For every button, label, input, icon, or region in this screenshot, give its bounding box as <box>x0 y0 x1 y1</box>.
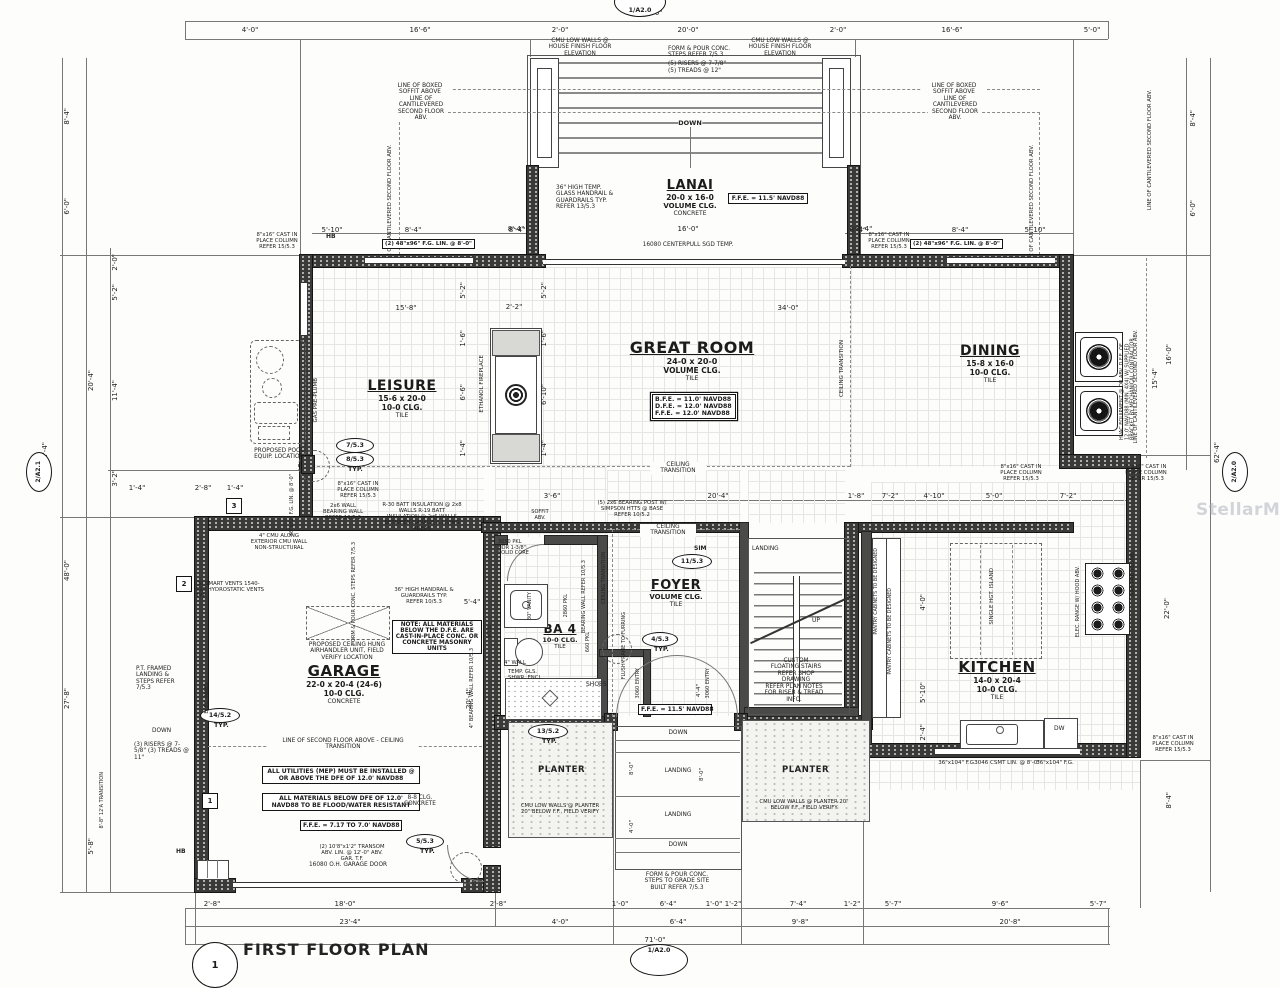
dim: 5'-0" <box>986 492 1003 500</box>
callout-5-5-3: 5/5.3 <box>406 834 444 849</box>
ceiling-transition-line <box>850 266 851 467</box>
dim: 6'-4" <box>670 918 687 926</box>
dim: 1'-8" <box>848 492 865 500</box>
step-line <box>615 752 740 753</box>
wall-type-marker-1: 1 <box>202 793 218 809</box>
dim: 22'-0" <box>1164 598 1171 619</box>
great-room-elev-box: B.F.E. = 11.0' NAVD88 D.F.E. = 12.0' NAV… <box>652 394 736 419</box>
room-size: 24-0 x 20-0 <box>630 357 754 366</box>
note-clg88: 8-8 CLG. CONCRETE <box>398 795 442 808</box>
dim: 1'-0" <box>612 900 629 908</box>
dim-line <box>1186 58 1187 470</box>
note-risers3: (3) RISERS @ 7-5/8" (3) TREADS @ 11" <box>134 742 192 761</box>
dim: 8'-4" <box>1190 110 1197 127</box>
garage-door <box>233 882 463 888</box>
stairs-landing-label: LANDING <box>752 546 779 553</box>
garage-utilities-box: ALL UTILITIES (MEP) MUST BE INSTALLED @ … <box>262 766 420 784</box>
note-transom: (2) 10'8"x1'2" TRANSOM ABV. LIN. @ 12'-0… <box>314 845 390 863</box>
faucet <box>996 726 1004 734</box>
wall-interior <box>740 523 748 716</box>
room-clg: 10-0 CLG. <box>542 636 577 644</box>
dim-line <box>62 58 63 892</box>
dim-line <box>86 58 87 892</box>
room-label-great-room: GREAT ROOM 24-0 x 20-0 VOLUME CLG. TILE <box>630 338 754 382</box>
dim-line <box>185 21 1108 22</box>
note-smart-vents: (5) SMART VENTS 1540-510 HYDROSTATIC VEN… <box>196 582 268 600</box>
dim: 8'-4" <box>509 226 526 234</box>
note-pool-equip: PROPOSED POOL EQUIP. LOCATION <box>252 448 306 461</box>
room-clg: VOLUME CLG. <box>649 593 702 601</box>
note-2860: 2860 PKL <box>564 594 569 617</box>
dim: 1'-6" <box>541 330 548 347</box>
dim-line <box>110 248 111 892</box>
dim: 11'-4" <box>112 380 119 401</box>
dim: 1'-2" <box>725 900 742 908</box>
ext-line <box>60 255 300 256</box>
section-bubble-right-label: 2/A2.0 <box>1232 461 1238 483</box>
wall <box>484 866 500 892</box>
note-handrail36: 36" HIGH HANDRAIL & GUARDRAILS TYP. REFE… <box>394 588 454 606</box>
note-bearing-post: (5) 2x6 BEARING POST W/ SIMPSON HTT5 @ B… <box>592 501 672 519</box>
ext-line <box>108 470 312 471</box>
room-label-garage: GARAGE 22-0 x 20-4 (24-6) 10-0 CLG. CONC… <box>306 662 382 705</box>
section-bubble-left-label: 2/A2.1 <box>36 461 42 483</box>
dim: 1'-4" <box>541 440 548 457</box>
note-fg48-box: (2) 48"x96" F.G. LIN. @ 8'-0" <box>382 239 475 249</box>
note-soffit: SOFFIT ABV. <box>528 510 552 521</box>
callout-circle <box>602 634 632 664</box>
wall <box>1060 255 1073 468</box>
wall-type-marker-2: 2 <box>176 576 192 592</box>
dishwasher-label: DW <box>1054 726 1065 733</box>
step-landing-label: LANDING <box>665 768 692 775</box>
dim: 5'-7" <box>885 900 902 908</box>
dim: 2'-8" <box>195 484 212 492</box>
note-ceiling-transition: CEILING TRANSITION <box>640 524 696 537</box>
ext-line <box>1073 255 1210 256</box>
lanai-column-inner <box>537 68 552 158</box>
air-handler-dashed <box>306 606 390 640</box>
room-clg: VOLUME CLG. <box>663 202 716 210</box>
callout-typ: TYP. <box>420 848 435 855</box>
note-ahu: PROPOSED CEILING HUNG AIRHANDLER UNIT, F… <box>304 642 390 661</box>
note-column: 8"x16" CAST IN PLACE COLUMN REFER 15/5.3 <box>330 482 386 500</box>
island-line <box>980 545 981 655</box>
room-size: 14-0 x 20-4 <box>958 676 1035 685</box>
dim: 34'-0" <box>777 304 798 312</box>
dim: 16'-0" <box>677 225 698 233</box>
note-ceiling-transition-v: CEILING TRANSITION <box>840 340 846 397</box>
dim: 1'-6" <box>460 330 467 347</box>
note-bearing-wall: BEARING WALL REFER 10/5.3 <box>582 560 587 633</box>
step-down-label: DOWN <box>668 730 687 737</box>
dim: 20'-0" <box>677 26 698 34</box>
planter-label: PLANTER <box>538 766 585 776</box>
electric-range <box>1085 563 1130 635</box>
window-fg48 <box>947 257 1055 264</box>
room-name: KITCHEN <box>958 658 1035 676</box>
dim: 2'-0" <box>830 26 847 34</box>
room-name: GREAT ROOM <box>630 338 754 357</box>
note-vanity: 30" VANITY <box>528 592 533 620</box>
note-pantry: PANTRY CABINETS TO BE DESIGNED <box>874 548 879 635</box>
note-column: 8"x16" CAST IN PLACE COLUMN REFER 15/5.3 <box>1144 736 1202 754</box>
exterior-steps <box>197 860 229 880</box>
window <box>301 282 307 336</box>
lanai-low-wall <box>848 166 859 257</box>
dim-line <box>1108 908 1109 944</box>
pool-equipment <box>262 378 282 398</box>
room-name: LEISURE <box>368 378 437 394</box>
dim: 5'-10" <box>1024 226 1045 234</box>
hvac-fan <box>1086 398 1112 424</box>
note-form-pour-v: FORM & POUR CONC. STEPS REFER 7/5.3 <box>352 542 357 645</box>
note-second-floor-line: LINE OF SECOND FLOOR ABOVE - CEILING TRA… <box>268 738 418 751</box>
dim: 8'-0" <box>700 768 706 781</box>
section-bubble-left: 2/A2.1 <box>26 452 52 492</box>
dim: 20'-4" <box>707 492 728 500</box>
dim: 7'-4" <box>790 900 807 908</box>
note-entry-door: 3060 ENTRY <box>706 668 711 698</box>
note-cmu-planter: CMU LOW WALLS @ PLANTER 20" BELOW F.F., … <box>752 800 856 812</box>
note-garage-door: 16080 O.H. GARAGE DOOR <box>309 862 387 868</box>
bfe: B.F.E. = 11.0' NAVD88 <box>655 396 733 403</box>
note-cmu-planter: CMU LOW WALLS @ PLANTER 20" BELOW F.F., … <box>518 804 602 816</box>
ext-line <box>1073 39 1074 255</box>
room-label-lanai: LANAI 20-0 x 16-0 VOLUME CLG. CONCRETE <box>663 178 716 217</box>
pool-equipment <box>254 402 298 424</box>
note-cantilever: LINE OF CANTILEVERED SECOND FLOOR ABV. <box>928 96 982 122</box>
fireplace-cabinet <box>492 434 540 462</box>
wall <box>195 879 235 892</box>
note-csmt: 3046 CSMT LIN. @ 8'-0" <box>974 760 1040 766</box>
dim: 4'-0" <box>552 918 569 926</box>
dim: 23'-4" <box>339 918 360 926</box>
dim: 7'-2" <box>1060 492 1077 500</box>
planter-left <box>508 722 613 838</box>
note-window-fg: 36"x72" F.G. LIN. @ 8'-0" <box>290 474 295 536</box>
note-ceiling-transition-v: CEILING TRANSITION <box>602 552 607 604</box>
note-window-fg: 36"x104" F.G. <box>938 760 976 766</box>
dim: 1'-4" <box>460 440 467 457</box>
note-elec-panel: ELEC. PANEL <box>205 682 210 714</box>
note-sgd: 16080 CENTERPULL SGD TEMP. <box>643 242 734 248</box>
dim: 4'-0" <box>630 820 636 833</box>
callout-8-5-3: 8/5.3 <box>336 452 374 467</box>
dim: 5'-2" <box>541 282 548 299</box>
dim: 1'-4" <box>129 484 146 492</box>
dim: 18'-0" <box>334 900 355 908</box>
hose-bib: HB <box>326 234 336 241</box>
sheet-title: FIRST FLOOR PLAN <box>243 941 430 959</box>
note-3050-door: 3050 PKL HDR 1-3/8" SOLID CORE <box>498 540 534 557</box>
note-risers: (5) RISERS @ 7-7/8" <box>668 61 736 67</box>
note-2x6-wall: 2x6 WALL BEARING WALL REFER 10/5.3 <box>322 504 364 522</box>
ffe: F.F.E. = 12.0' NAVD88 <box>655 410 733 417</box>
dim: 1'-2" <box>844 900 861 908</box>
step-line <box>615 838 740 839</box>
dim: 16'-6" <box>409 26 430 34</box>
dim: 4'-0" <box>920 594 927 611</box>
step-down-label: DOWN <box>668 842 687 849</box>
note-soffit-line: LINE OF BOXED SOFFIT ABOVE <box>922 83 986 96</box>
ext-line <box>495 892 496 926</box>
room-name: DINING <box>960 343 1020 359</box>
note-4in-wall: 4" WALL <box>504 660 526 666</box>
dim: 9'-8" <box>792 918 809 926</box>
room-name: FOYER <box>649 578 702 593</box>
hvac-unit <box>1075 332 1123 382</box>
room-clg: 10-0 CLG. <box>306 689 382 698</box>
note-steps-form: FORM & POUR CONC. STEPS REFER 7/5.3 <box>668 46 736 59</box>
dim: 1'-4" <box>227 484 244 492</box>
dishwasher <box>1044 718 1078 749</box>
cantilever-dashed-line <box>1146 258 1147 458</box>
dim: 5'-4" <box>464 598 481 606</box>
note-vto: V.T.O. <box>488 624 493 638</box>
note-pt-landing: P.T. FRAMED LANDING & STEPS REFER 7/5.3 <box>136 666 188 692</box>
note-riser-tread: REFER PLAN NOTES FOR RISER & TREAD INFO. <box>764 684 824 703</box>
note-column: 8"x16" CAST IN PLACE COLUMN REFER 15/5.3 <box>1120 465 1172 483</box>
dim: 2'-8" <box>204 900 221 908</box>
step-line <box>207 860 208 878</box>
note-window-fg: 36"x104" F.G. <box>1036 760 1074 766</box>
garage-flood-box: ALL MATERIALS BELOW DFE OF 12.0' NAVD88 … <box>262 793 420 811</box>
cantilever-dashed-line <box>399 112 400 255</box>
callout-typ: TYP. <box>348 466 363 473</box>
label-shoes: SHOES <box>586 682 607 689</box>
room-clg: 10-0 CLG. <box>368 403 437 412</box>
planter-label: PLANTER <box>782 766 829 776</box>
garage-ffe-box: F.F.E. = 7.17 TO 7.0' NAVD88 <box>300 820 402 831</box>
wall-type-marker-3: 3 <box>226 498 242 514</box>
callout-11-5-3: 11/5.3 <box>672 554 712 569</box>
dim: 27'-8" <box>64 688 71 709</box>
note-range: ELEC. RANGE W/ HOOD ABV. <box>1076 566 1081 637</box>
step-line <box>217 860 218 878</box>
dim: 20'-4" <box>466 688 473 709</box>
floor-plan-sheet: { "watermark": "StellarMLS", "sheet": {"… <box>0 0 1280 960</box>
room-floor: CONCRETE <box>663 210 716 217</box>
note-cantilever-v: LINE OF CANTILEVERED SECOND FLOOR ABV. <box>1030 145 1036 265</box>
room-floor: CONCRETE <box>306 698 382 705</box>
fireplace-cabinet <box>492 330 540 356</box>
note-steps-grade: FORM & POUR CONC. STEPS TO GRADE SITE BU… <box>644 872 710 891</box>
dim: 5'-7" <box>1090 900 1107 908</box>
title-scale-bubble: 1 <box>192 942 238 988</box>
room-clg: 10-0 CLG. <box>960 368 1020 377</box>
note-entry-door: 3060 ENTRY <box>636 668 641 698</box>
note-pantry: PANTRY CABINETS TO BE DESIGNED <box>888 588 893 675</box>
tile-floor <box>748 470 845 523</box>
callout-typ: TYP. <box>542 738 557 745</box>
lanai-low-wall <box>527 166 538 257</box>
dim-line <box>185 21 186 39</box>
section-bubble-bottom: 1/A2.0 <box>630 944 688 976</box>
dim: 8'-4" <box>1166 792 1173 809</box>
dim: 5'-8" <box>88 838 95 855</box>
dim: 8'-4" <box>64 108 71 125</box>
hvac-fan <box>1086 344 1112 370</box>
column <box>302 456 314 473</box>
dim: 2'-8" <box>490 900 507 908</box>
dim: 4'-10" <box>923 492 944 500</box>
note-660: 660 PKL <box>586 632 591 652</box>
room-floor: TILE <box>368 412 437 419</box>
ext-line <box>60 517 195 518</box>
ext-line <box>1140 760 1141 908</box>
ext-line <box>300 39 301 255</box>
dim: 16'-0" <box>1166 344 1173 365</box>
dim-line <box>185 926 1110 927</box>
hose-bib: HB <box>176 849 186 856</box>
note-gas-preplumb: GAS PRE-PLUMB <box>1131 552 1137 597</box>
note-shower: TEMP. GLS. SHWR. ENCL. <box>508 670 544 682</box>
callout-7-5-3: 7/5.3 <box>336 438 374 453</box>
note-cmu-house: CMU LOW WALLS @ HOUSE FINISH FLOOR ELEVA… <box>748 38 812 57</box>
room-clg: VOLUME CLG. <box>630 366 754 375</box>
step-landing-label: LANDING <box>665 812 692 819</box>
note-glass-rail: 36" HIGH TEMP. GLASS HANDRAIL & GUARDRAI… <box>556 185 614 211</box>
ext-line <box>1140 455 1210 456</box>
dim-transition: 8'-8" 12'A TRANSITION <box>100 772 105 829</box>
step-line <box>615 796 740 797</box>
dim-line <box>1210 58 1211 892</box>
note-fg48-box: (2) 48"x96" F.G. LIN. @ 8'-0" <box>910 239 1003 249</box>
dim: 5'-0" <box>1084 26 1101 34</box>
callout-sim: SIM <box>694 546 707 553</box>
step-line <box>615 852 740 853</box>
lanai-ffe-box: F.F.E. = 11.5' NAVD88 <box>728 193 808 204</box>
dim: 48'-0" <box>64 560 71 581</box>
ceiling-transition-line <box>612 529 613 717</box>
dim-overall: 62'-4" <box>1214 442 1221 463</box>
note-cantilever-v: LINE OF CANTILEVERED SECOND FLOOR ABV. <box>1148 90 1154 210</box>
dim: 8'-4" <box>952 226 969 234</box>
dim: 8'-0" <box>630 762 636 775</box>
dim-line <box>1108 21 1109 39</box>
dim: 4'-0" <box>242 26 259 34</box>
note-cantilever: LINE OF CANTILEVERED SECOND FLOOR ABV. <box>394 96 448 122</box>
lanai-column-inner <box>829 68 844 158</box>
note-cmu-house: CMU LOW WALLS @ HOUSE FINISH FLOOR ELEVA… <box>548 38 612 57</box>
dim: 6'-4" <box>660 900 677 908</box>
room-name: GARAGE <box>306 662 382 680</box>
room-name: LANAI <box>663 178 716 193</box>
note-batt-insulation: R-30 BATT INSULATION @ 2x8 WALLS R-19 BA… <box>382 503 462 533</box>
note-gas-preplumb: GAS PRE-PLUMB <box>314 378 320 423</box>
sliding-glass-door <box>543 259 845 265</box>
room-label-kitchen: KITCHEN 14-0 x 20-4 10-0 CLG. TILE <box>958 658 1035 701</box>
dim: 5'-2" <box>112 284 119 301</box>
room-clg: 10-0 CLG. <box>958 685 1035 694</box>
kitchen-island <box>950 543 1042 659</box>
note-hvac: HVAC EQUIPMENT @ OR ABV. D.F.E. OF 12.0'… <box>1120 332 1134 440</box>
dim: 2'-0" <box>552 26 569 34</box>
room-size: 15-8 x 16-0 <box>960 359 1020 368</box>
wall <box>484 517 500 847</box>
dim: 7'-2" <box>882 492 899 500</box>
dim-overall: 71'-0" <box>644 936 665 944</box>
hvac-unit <box>1075 386 1123 436</box>
room-floor: TILE <box>958 694 1035 701</box>
dim: 15'-8" <box>395 304 416 312</box>
wall-interior <box>862 532 871 744</box>
dim: 6'-10" <box>541 384 548 405</box>
section-bubble-right: 2/A2.0 <box>1222 452 1248 492</box>
callout-13-5-2: 13/5.2 <box>528 724 568 739</box>
dim: 15'-4" <box>1152 368 1159 389</box>
room-floor: TILE <box>542 644 577 650</box>
dim: 2'-0" <box>112 254 119 271</box>
ext-line <box>1140 760 1210 761</box>
dim: 20'-8" <box>999 918 1020 926</box>
ext-line <box>613 730 614 944</box>
dfe: D.F.E. = 12.0' NAVD88 <box>655 403 733 410</box>
dim: 3'-6" <box>544 492 561 500</box>
kitchen-sink <box>966 724 1018 745</box>
dim: 1'-0" <box>706 900 723 908</box>
dim: 5'-10" <box>920 682 927 703</box>
dim: 9'-6" <box>992 900 1009 908</box>
foyer-ffe-box: F.F.E. = 11.5' NAVD88 <box>638 704 712 715</box>
dim: 5'-2" <box>460 282 467 299</box>
island-line <box>1012 545 1013 655</box>
dim: 4'-4" <box>697 684 703 697</box>
dim: 6'-6" <box>460 384 467 401</box>
stairs-up-label: UP <box>812 618 820 625</box>
note-cmu4: 4" CMU ALONG EXTERIOR CMU WALL NON-STRUC… <box>246 534 312 552</box>
note-column: 8"x16" CAST IN PLACE COLUMN REFER 15/5.3 <box>250 233 304 251</box>
dim: 2'-4" <box>920 724 927 741</box>
room-floor: TILE <box>649 601 702 608</box>
callout-4-5-3: 4/5.3 <box>642 632 678 647</box>
note-treads: (5) TREADS @ 12" <box>668 68 736 74</box>
step-line <box>615 740 740 741</box>
dim: 2'-2" <box>506 303 523 311</box>
dim: 3'-2" <box>112 470 119 487</box>
room-size: 22-0 x 20-4 (24-6) <box>306 680 382 689</box>
dim-line <box>185 39 1108 40</box>
window-fg48 <box>365 257 473 264</box>
room-label-leisure: LEISURE 15-6 x 20-0 10-0 CLG. TILE <box>368 378 437 419</box>
dim: 6'-0" <box>64 198 71 215</box>
note-column: 8"x16" CAST IN PLACE COLUMN REFER 15/5.3 <box>862 233 916 251</box>
watermark: StellarMLS <box>1196 500 1280 520</box>
kitchen-windows <box>935 748 1080 755</box>
dim-line <box>185 908 1110 909</box>
room-size: 15-6 x 20-0 <box>368 394 437 403</box>
pool-equipment <box>258 426 290 440</box>
dim: 8'-4" <box>405 226 422 234</box>
fireplace-burner <box>505 384 527 406</box>
dim: 20'-4" <box>88 370 95 391</box>
callout-typ: TYP. <box>214 722 229 729</box>
dim-line <box>185 908 186 944</box>
note-soffit-line: LINE OF BOXED SOFFIT ABOVE <box>388 83 452 96</box>
room-label-dining: DINING 15-8 x 16-0 10-0 CLG. TILE <box>960 343 1020 384</box>
callout-typ: TYP. <box>654 646 669 653</box>
wall-interior <box>482 523 747 532</box>
room-label-foyer: FOYER VOLUME CLG. TILE <box>649 578 702 608</box>
note-ceiling-transition: CEILING TRANSITION <box>650 462 706 475</box>
room-floor: TILE <box>960 377 1020 384</box>
room-floor: TILE <box>630 375 754 382</box>
lanai-steps-deck <box>558 62 824 158</box>
wall-interior <box>855 523 1073 532</box>
ext-line <box>60 892 195 893</box>
room-size: 20-0 x 16-0 <box>663 193 716 202</box>
